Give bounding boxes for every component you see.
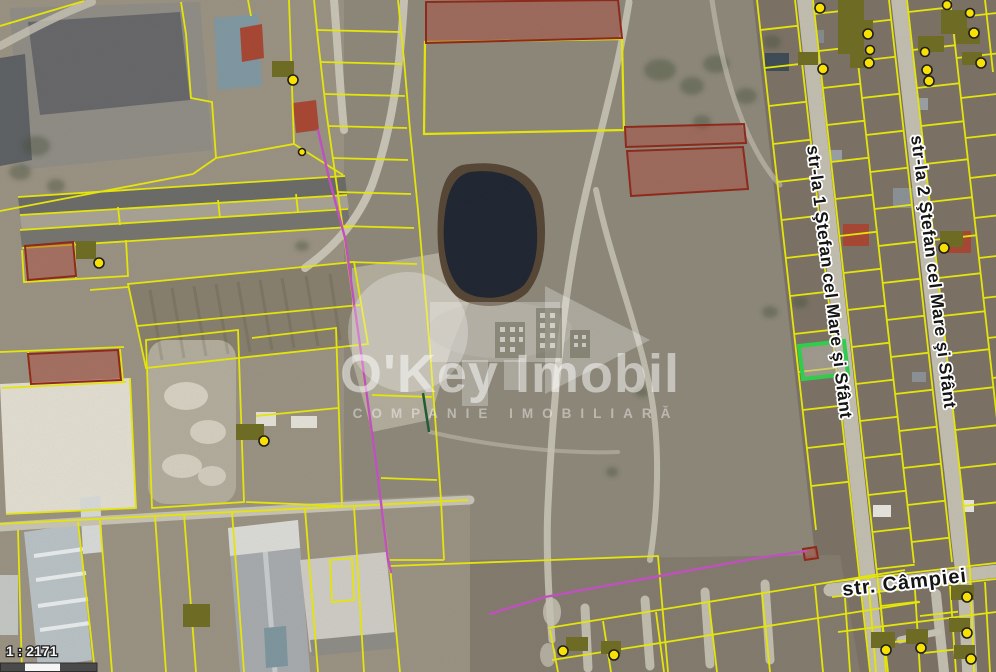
watermark-title: O'Key Imobil <box>340 344 680 404</box>
scale-ratio-label: 1 : 2171 <box>6 643 58 659</box>
map-canvas[interactable]: str-la 1 Ştefan cel Mare şi Sfânt str-la… <box>0 0 996 672</box>
scale-bar <box>0 663 97 672</box>
watermark-subtitle: COMPANIE IMOBILIARĂ <box>353 406 680 421</box>
map-viewport[interactable]: str-la 1 Ştefan cel Mare şi Sfânt str-la… <box>0 0 996 672</box>
